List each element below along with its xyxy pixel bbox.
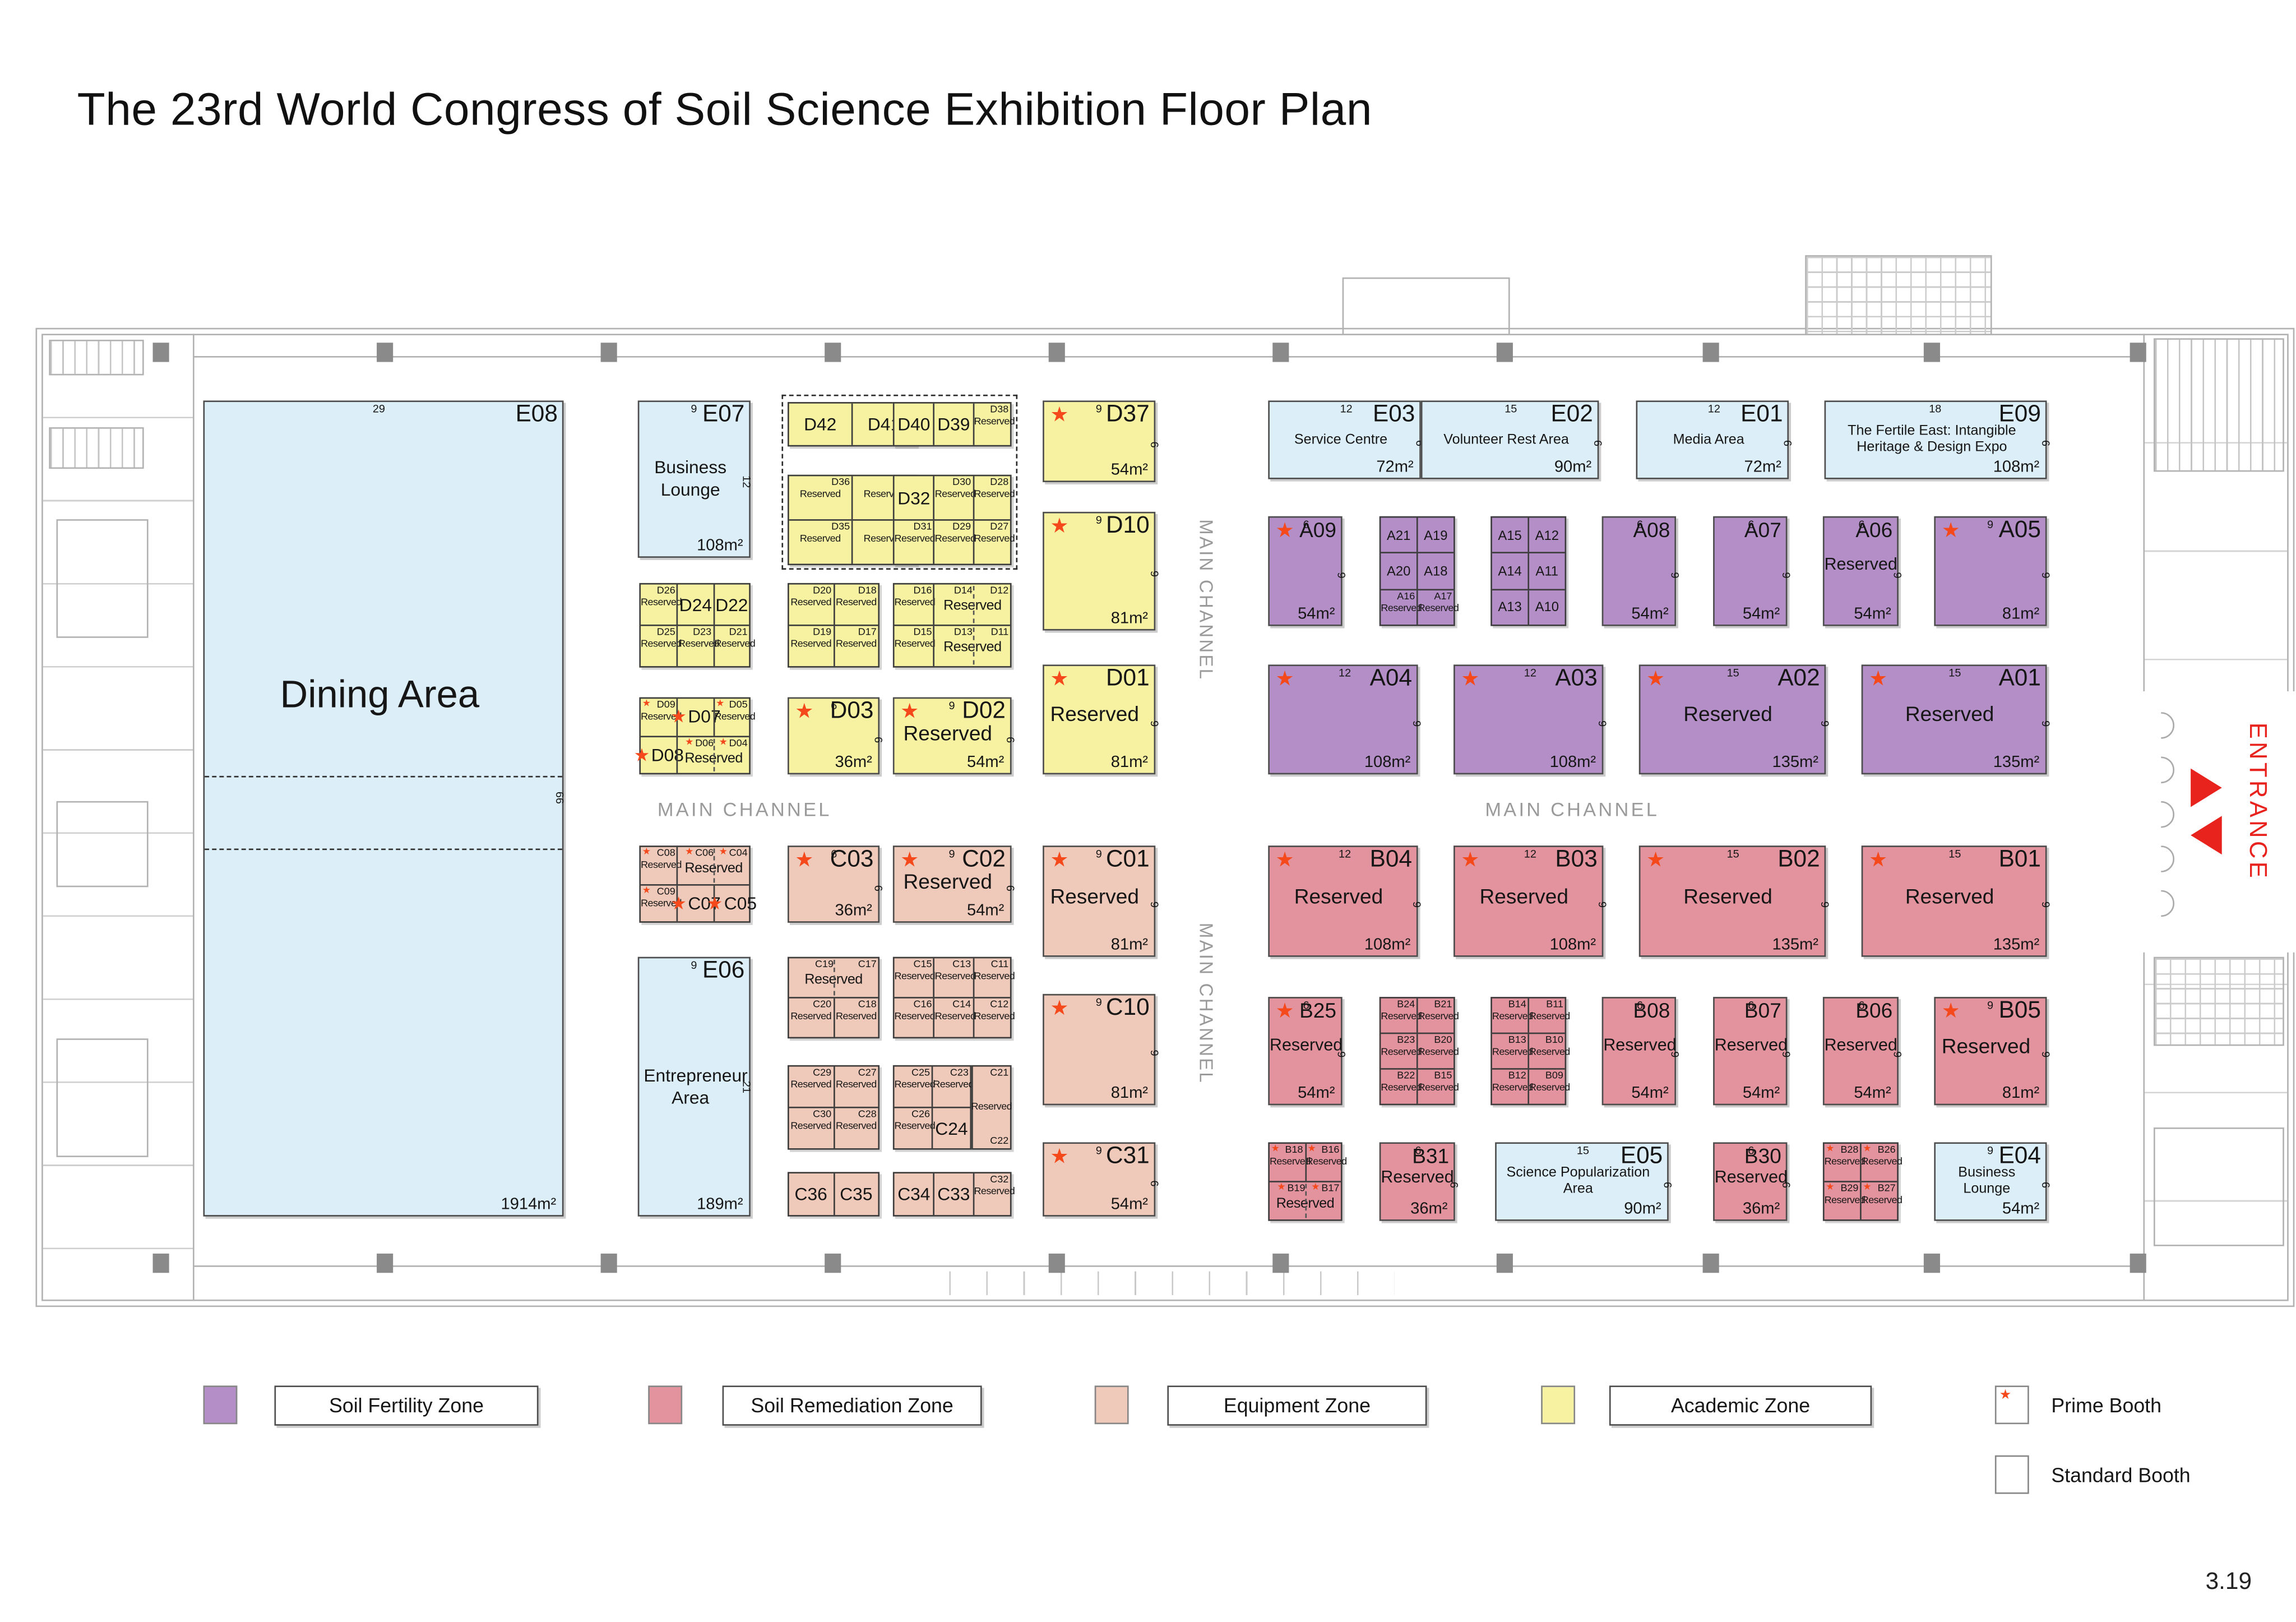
- booth-dim-side: 9: [1596, 720, 1608, 726]
- cell-reserved-label: Reserved: [1825, 1157, 1860, 1169]
- booth-block: B14ReservedB11ReservedB13ReservedB10Rese…: [1490, 997, 1566, 1105]
- cell-id: C26: [911, 1110, 930, 1122]
- cell-id: B27: [1878, 1184, 1896, 1196]
- cell-reserved-label: Reserved: [641, 861, 677, 872]
- booth-A04: ★12A049108m²: [1268, 664, 1418, 774]
- cell-id: B13: [1508, 1036, 1526, 1048]
- booth-dim-side: 21: [740, 1081, 752, 1093]
- cell-id: C23: [950, 1068, 969, 1080]
- structural-column: [1497, 343, 1513, 362]
- cell-id: C35: [840, 1184, 872, 1205]
- cell-A10: A10: [1527, 590, 1564, 625]
- booth-block-row: D40D39D38Reserved: [895, 404, 1010, 445]
- booth-dim-side: 9: [1148, 1050, 1159, 1056]
- prime-star-icon: ★: [1050, 849, 1068, 870]
- booth-block-row: C26ReservedC24: [895, 1107, 970, 1148]
- cell-A11: A11: [1527, 554, 1564, 589]
- cell-B24: B24Reserved: [1381, 999, 1417, 1033]
- cell-D20: D20Reserved: [789, 585, 833, 625]
- legend-label-soil-remediation-zone: Soil Remediation Zone: [723, 1385, 982, 1425]
- cell-header: ★B28: [1825, 1144, 1860, 1157]
- cell-A18: A18: [1417, 554, 1453, 589]
- cell-reserved-label: Reserved: [933, 1080, 970, 1092]
- cell-id: C15: [914, 960, 932, 972]
- booth-block: B24ReservedB21ReservedB23ReservedB20Rese…: [1380, 997, 1455, 1105]
- booth-id: B08: [1633, 999, 1670, 1023]
- prime-star-icon: ★: [1277, 1184, 1285, 1196]
- side-room: [57, 801, 149, 887]
- cell-C23: C23Reserved: [932, 1066, 970, 1106]
- cell-label: D42: [789, 404, 851, 445]
- cell-B29: ★B29Reserved: [1825, 1182, 1860, 1219]
- cell-reserved-label: Reserved: [834, 1012, 878, 1024]
- cell-id: D26: [657, 586, 675, 598]
- cell-D42: D42: [789, 404, 851, 445]
- booth-block-row: A21A19: [1381, 517, 1453, 552]
- booth-area: 54m²: [1854, 606, 1891, 623]
- prime-star-icon: ★: [719, 738, 728, 750]
- booth-dim-side: 9: [1780, 571, 1792, 577]
- booth-id: B03: [1555, 847, 1597, 875]
- cell-header: D36: [789, 476, 851, 489]
- cell-header: ★B26: [1862, 1144, 1897, 1157]
- cell-header: B12: [1492, 1070, 1528, 1083]
- cell-reserved-label: Reserved: [641, 598, 677, 610]
- cell-C16: C16Reserved: [895, 999, 934, 1037]
- cell-label: C34: [895, 1173, 934, 1215]
- booth-dim-top: 15: [1577, 1144, 1589, 1157]
- cell-id: C22: [990, 1136, 1008, 1147]
- cell-id: A16: [1397, 592, 1415, 604]
- dashed-divider: [1305, 1184, 1307, 1218]
- booth-area: 108m²: [1364, 754, 1411, 771]
- cell-id: D22: [715, 594, 748, 615]
- cell-id: B11: [1546, 1000, 1563, 1012]
- booth-block-row: B13ReservedB10Reserved: [1492, 1033, 1565, 1069]
- prime-star-icon: ★: [685, 849, 693, 861]
- booth-area: 81m²: [1111, 754, 1148, 771]
- prime-star-icon: ★: [670, 706, 686, 727]
- cell-id: C08: [657, 849, 675, 861]
- page-number: 3.19: [2206, 1569, 2252, 1596]
- booth-E04: 9E04Business Lounge654m²: [1934, 1142, 2047, 1221]
- cell-header: B20: [1418, 1034, 1454, 1047]
- booth-area: 54m²: [967, 754, 1004, 771]
- booth-area: 108m²: [1993, 459, 2040, 477]
- booth-block-row: ★B28Reserved★B26Reserved: [1825, 1144, 1897, 1181]
- booth-block-row: C30ReservedC28Reserved: [789, 1107, 878, 1148]
- booth-B04: ★12B04Reserved9108m²: [1268, 845, 1418, 956]
- booth-name: Science Popularization Area: [1501, 1164, 1655, 1199]
- cell-reserved-label: Reserved: [1381, 1012, 1417, 1024]
- cell-C15: C15Reserved: [895, 958, 934, 997]
- booth-reserved-label: Reserved: [1603, 1037, 1665, 1055]
- booth-dim-side: 6: [1661, 1182, 1673, 1189]
- booth-id: C10: [1106, 995, 1150, 1023]
- booth-C03: ★6C03636m²: [788, 845, 879, 923]
- cell-C33: C33: [933, 1173, 973, 1215]
- cell-id: B26: [1878, 1145, 1896, 1158]
- dashed-divider: [973, 627, 974, 664]
- structural-column: [377, 343, 393, 362]
- booth-B03: ★12B03Reserved9108m²: [1453, 845, 1603, 956]
- booth-block-row: B22ReservedB15Reserved: [1381, 1068, 1453, 1104]
- booth-block: C15ReservedC13ReservedC11ReservedC16Rese…: [893, 957, 1012, 1039]
- cell-id: D14: [954, 586, 973, 598]
- booth-area: 54m²: [1298, 606, 1335, 623]
- cell-label: D22: [714, 585, 749, 625]
- cell-id: D29: [952, 522, 971, 534]
- booth-area: 90m²: [1554, 459, 1591, 477]
- booth-area: 36m²: [835, 754, 872, 771]
- booth-reserved-label: Reserved: [1044, 884, 1145, 908]
- booth-dim-side: 9: [1818, 720, 1830, 726]
- cell-header: C23: [933, 1066, 970, 1080]
- booth-block: C36C35: [788, 1172, 879, 1216]
- prime-star-icon: ★: [1999, 1389, 2011, 1402]
- prime-star-icon: ★: [1646, 668, 1665, 688]
- booth-block: A21A19A20A18A16ReservedA17Reserved: [1380, 516, 1455, 626]
- booth-name: Entrepreneur Area: [644, 1065, 737, 1109]
- cell-reserved-label: Reserved: [789, 490, 851, 502]
- booth-area: 108m²: [1364, 936, 1411, 954]
- booth-dim-top: 9: [1096, 402, 1102, 415]
- booth-id: B05: [1999, 999, 2041, 1026]
- cell-header: D29: [935, 521, 973, 534]
- cell-reserved-label: Reserved: [1862, 1196, 1897, 1208]
- prime-star-icon: ★: [1271, 1145, 1280, 1155]
- cell-header: D23: [678, 626, 713, 640]
- booth-block-row: A15A12: [1492, 517, 1565, 552]
- cell-reserved-label: Reserved: [1270, 1157, 1304, 1169]
- cell-label: A21: [1381, 517, 1417, 552]
- booth-area: 90m²: [1624, 1200, 1661, 1218]
- cell-id: D16: [914, 586, 932, 598]
- prime-star-icon: ★: [1050, 515, 1068, 535]
- booth-block-row: D16ReservedD14D12Reserved: [895, 585, 1010, 625]
- booth-block-row: A20A18: [1381, 552, 1453, 588]
- booth-area: 54m²: [1743, 606, 1780, 623]
- booth-block-row: B24ReservedB21Reserved: [1381, 999, 1453, 1033]
- booth-dim-side: 6: [1781, 441, 1793, 447]
- cell-header: C27: [834, 1066, 878, 1080]
- legend-text: Soil Remediation Zone: [751, 1394, 953, 1417]
- booth-reserved-label: Reserved: [1270, 884, 1408, 908]
- cell-reserved-label: Reserved: [1418, 1083, 1454, 1095]
- booth-id: B06: [1855, 999, 1892, 1023]
- cell-header: D25: [641, 626, 677, 640]
- prime-star-icon: ★: [1311, 1184, 1320, 1196]
- booth-area: 72m²: [1744, 459, 1781, 477]
- booth-id: C01: [1106, 847, 1150, 875]
- booth-id: A03: [1555, 666, 1597, 694]
- booth-dim-top: 12: [1340, 402, 1353, 415]
- cell-id: D36: [831, 478, 850, 490]
- floor-plan-canvas: The 23rd World Congress of Soil Science …: [0, 0, 2296, 1621]
- booth-D02: ★9D02Reserved654m²: [893, 697, 1012, 775]
- cell-C19: C19C17Reserved: [789, 958, 878, 997]
- cell-D29: D29Reserved: [933, 521, 973, 564]
- booth-id: B02: [1777, 847, 1820, 875]
- cell-id: C05: [724, 893, 757, 913]
- booth-name: Dining Area: [209, 671, 550, 719]
- cell-D28: D28Reserved: [973, 476, 1010, 519]
- booth-reserved-label: Reserved: [1455, 884, 1593, 908]
- cell-reserved-label: Reserved: [714, 712, 749, 724]
- structural-column: [1924, 343, 1940, 362]
- booth-A03: ★12A039108m²: [1453, 664, 1603, 774]
- prime-star-icon: ★: [685, 738, 693, 750]
- booth-id: D37: [1106, 402, 1150, 429]
- booth-B02: ★15B02Reserved9135m²: [1639, 845, 1826, 956]
- booth-id: E01: [1740, 402, 1783, 429]
- cell-id: B17: [1321, 1184, 1339, 1196]
- cell-reserved-label: Reserved: [1529, 1012, 1565, 1024]
- cell-C28: C28Reserved: [833, 1108, 878, 1148]
- cell-id: D27: [990, 522, 1008, 534]
- booth-block-row: C21ReservedC22: [973, 1066, 1010, 1148]
- cell-C14: C14Reserved: [933, 999, 973, 1037]
- entrance-arrow-right-icon: [2191, 769, 2222, 807]
- cell-label: A20: [1381, 554, 1417, 589]
- booth-block: A15A12A14A11A13A10: [1490, 516, 1566, 626]
- prime-star-icon: ★: [1050, 997, 1068, 1018]
- booth-block-row: D26ReservedD24D22: [641, 585, 749, 625]
- cell-reserved-label: Reserved: [1381, 1083, 1417, 1095]
- cell-id: C14: [952, 1000, 971, 1012]
- cell-id: C13: [952, 960, 971, 972]
- booth-area: 72m²: [1376, 459, 1413, 477]
- cell-reserved-label: Reserved: [974, 1012, 1010, 1024]
- booth-dim-top: 9: [1096, 847, 1102, 861]
- booth-id: C03: [830, 847, 874, 875]
- cell-label: ★D08: [641, 737, 677, 773]
- cell-id: B28: [1840, 1145, 1858, 1158]
- cell-B16: ★B16Reserved: [1304, 1144, 1341, 1181]
- structural-column: [1272, 1254, 1289, 1273]
- cell-reserved-label: Reserved: [895, 1122, 932, 1134]
- prime-star-icon: ★: [1942, 1000, 1960, 1020]
- cell-D07: ★D07: [677, 699, 712, 735]
- prime-star-icon: ★: [1050, 1145, 1068, 1166]
- booth-reserved-label: Reserved: [1825, 557, 1888, 575]
- cell-A19: A19: [1417, 517, 1453, 552]
- booth-reserved-label: Reserved: [1640, 703, 1815, 726]
- cell-reserved-label: Reserved: [895, 1012, 934, 1024]
- prime-star-icon: ★: [670, 893, 686, 913]
- booth-id: A01: [1999, 666, 2041, 694]
- prime-star-icon: ★: [900, 849, 919, 870]
- booth-id: A02: [1777, 666, 1820, 694]
- booth-block: C34C33C32Reserved: [893, 1172, 1012, 1216]
- cell-footer: C22: [973, 1136, 1010, 1148]
- cell-id: C27: [858, 1068, 877, 1080]
- cell-D32: D32: [895, 476, 934, 519]
- booth-reserved-label: Reserved: [1863, 884, 2036, 908]
- booth-block: C29ReservedC27ReservedC30ReservedC28Rese…: [788, 1065, 879, 1150]
- booth-block-row: C19C17Reserved: [789, 958, 878, 997]
- booth-block-row: C15ReservedC13ReservedC11Reserved: [895, 958, 1010, 997]
- structural-column: [1049, 1254, 1065, 1273]
- cell-B28: ★B28Reserved: [1825, 1144, 1860, 1181]
- booth-dim-side: 12: [740, 475, 752, 488]
- booth-id: E08: [516, 402, 558, 429]
- booth-D37: ★9D37654m²: [1043, 400, 1155, 482]
- structural-column: [1924, 1254, 1940, 1273]
- booth-E07: 9E07Business Lounge12108m²: [638, 400, 751, 557]
- prime-star-icon: ★: [1276, 849, 1294, 870]
- wall: [2143, 949, 2145, 1301]
- cell-id: A11: [1535, 563, 1558, 578]
- booth-A05: ★9A05981m²: [1934, 516, 2047, 626]
- cell-reserved-label: Reserved: [974, 534, 1010, 546]
- prime-star-icon: ★: [1276, 668, 1294, 688]
- booth-B01: ★15B01Reserved9135m²: [1862, 845, 2047, 956]
- cell-C13: C13Reserved: [933, 958, 973, 997]
- cell-C30: C30Reserved: [789, 1108, 833, 1148]
- cell-header: ★B16: [1306, 1144, 1341, 1157]
- cell-reserved-label: Reserved: [895, 598, 934, 610]
- cell-label: D32: [895, 476, 934, 519]
- restroom-fixtures: [2154, 957, 2284, 1046]
- booth-dim-top: 15: [1505, 402, 1517, 415]
- legend-text: Academic Zone: [1671, 1394, 1810, 1417]
- booth-id: E06: [702, 958, 744, 986]
- booth-id: A09: [1299, 517, 1336, 542]
- booth-id: B07: [1744, 999, 1781, 1023]
- booth-block-row: C16ReservedC14ReservedC12Reserved: [895, 997, 1010, 1037]
- cell-id: C16: [914, 1000, 932, 1012]
- cell-reserved-label: Reserved: [1381, 1047, 1417, 1059]
- cell-B13: B13Reserved: [1492, 1034, 1528, 1068]
- booth-dim-side: 9: [1780, 1051, 1792, 1057]
- booth-dim-side: 66: [553, 792, 564, 804]
- roof-structure: [1343, 278, 1510, 335]
- cell-header: D17: [834, 626, 878, 640]
- cell-id: A10: [1535, 600, 1559, 614]
- legend-label-soil-fertility-zone: Soil Fertility Zone: [275, 1385, 539, 1425]
- cell-id: C29: [813, 1068, 831, 1080]
- prime-star-icon: ★: [1307, 1145, 1316, 1155]
- booth-area: 108m²: [1550, 936, 1596, 954]
- cell-C29: C29Reserved: [789, 1066, 833, 1106]
- cell-reserved-label: Reserved: [789, 598, 833, 610]
- booth-dim-side: 9: [1891, 571, 1902, 577]
- cell-header: D20: [789, 585, 833, 598]
- prime-star-icon: ★: [719, 849, 728, 861]
- main-channel-label: MAIN CHANNEL: [1469, 798, 1676, 821]
- booth-block-row: B12ReservedB09Reserved: [1492, 1068, 1565, 1104]
- structural-column: [601, 343, 617, 362]
- cell-id: D38: [990, 405, 1008, 417]
- cell-header: D38: [974, 404, 1010, 417]
- cell-reserved-label: Reserved: [678, 640, 713, 651]
- booth-block-row: C25ReservedC23Reserved: [895, 1066, 970, 1106]
- booth-E06: 9E06Entrepreneur Area21189m²: [638, 957, 751, 1217]
- cell-id: D28: [990, 478, 1008, 490]
- cell-id: C28: [858, 1110, 877, 1122]
- structural-column: [1703, 343, 1719, 362]
- cell-reserved-label: Reserved: [1418, 1047, 1454, 1059]
- booth-name: Business Lounge: [1940, 1164, 2034, 1199]
- cell-header: C30: [789, 1108, 833, 1122]
- booth-dim-top: 9: [1987, 1144, 1993, 1157]
- booth-area: 54m²: [2002, 1200, 2039, 1218]
- prime-star-icon: ★: [634, 745, 650, 765]
- cell-id: B18: [1285, 1145, 1303, 1158]
- cell-id: B29: [1840, 1184, 1858, 1196]
- cell-label: A12: [1529, 517, 1565, 552]
- structural-column: [1497, 1254, 1513, 1273]
- cell-D08: ★D08: [641, 737, 677, 773]
- booth-area: 54m²: [1111, 1196, 1148, 1214]
- cell-id: D04: [729, 738, 748, 750]
- booth-dim-side: 9: [1669, 1051, 1680, 1057]
- cell-reserved-label: Reserved: [973, 1080, 1010, 1136]
- booth-area: 54m²: [1631, 606, 1668, 623]
- cell-D05: ★D05Reserved: [713, 699, 749, 735]
- booth-dim-side: 6: [2040, 441, 2051, 447]
- cell-C05: ★C05: [713, 885, 749, 921]
- cell-header: B10: [1529, 1034, 1565, 1047]
- booth-C31: ★9C31654m²: [1043, 1142, 1155, 1216]
- cell-D26: D26Reserved: [641, 585, 677, 625]
- booth-name: Volunteer Rest Area: [1427, 431, 1585, 449]
- cell-id: B15: [1434, 1071, 1452, 1083]
- cell-B11: B11Reserved: [1527, 999, 1564, 1033]
- booth-E02: 15E02Volunteer Rest Area690m²: [1421, 400, 1599, 479]
- restroom-fixtures: [49, 340, 143, 376]
- cell-label: A11: [1529, 554, 1565, 589]
- booth-C01: ★9C01Reserved981m²: [1043, 845, 1155, 956]
- cell-C20: C20Reserved: [789, 999, 833, 1037]
- cell-D21: D21Reserved: [713, 626, 749, 666]
- booth-B07: 6B07Reserved954m²: [1713, 997, 1787, 1105]
- booth-area: 36m²: [835, 902, 872, 920]
- cell-id: C20: [813, 1000, 831, 1012]
- cell-C24: C24: [932, 1108, 970, 1148]
- prime-star-icon: ★: [1942, 519, 1960, 540]
- cell-label: D39: [935, 404, 973, 445]
- cell-D38: D38Reserved: [973, 404, 1010, 445]
- cell-header: C26: [895, 1108, 932, 1122]
- restroom-fixtures: [49, 427, 143, 469]
- cell-reserved-label: Reserved: [1418, 603, 1454, 615]
- booth-id: B04: [1370, 847, 1412, 875]
- booth-dim-side: 9: [1411, 720, 1422, 726]
- cell-reserved-label: Reserved: [834, 640, 878, 651]
- booth-block-row: B14ReservedB11Reserved: [1492, 999, 1565, 1033]
- cell-reserved-label: Reserved: [1529, 1047, 1565, 1059]
- prime-star-icon: ★: [795, 700, 813, 721]
- door-openings: [949, 1272, 1394, 1295]
- cell-header: B21: [1418, 999, 1454, 1012]
- booth-id: B01: [1999, 847, 2041, 875]
- prime-star-icon: ★: [900, 700, 919, 721]
- booth-area: 81m²: [2002, 1084, 2039, 1102]
- cell-A17: A17Reserved: [1417, 590, 1453, 625]
- legend-swatch-standard-booth: [1995, 1455, 2029, 1494]
- cell-reserved-label: Reserved: [714, 640, 749, 651]
- booth-dim-top: 12: [1524, 666, 1536, 680]
- booth-A01: ★15A01Reserved9135m²: [1862, 664, 2047, 774]
- wall: [2143, 334, 2145, 694]
- cell-A14: A14: [1492, 554, 1528, 589]
- cell-D06: ★D06★D04Reserved: [677, 737, 749, 773]
- cell-header: B15: [1418, 1070, 1454, 1083]
- cell-header: C12: [974, 999, 1010, 1012]
- booth-id: E07: [702, 402, 744, 429]
